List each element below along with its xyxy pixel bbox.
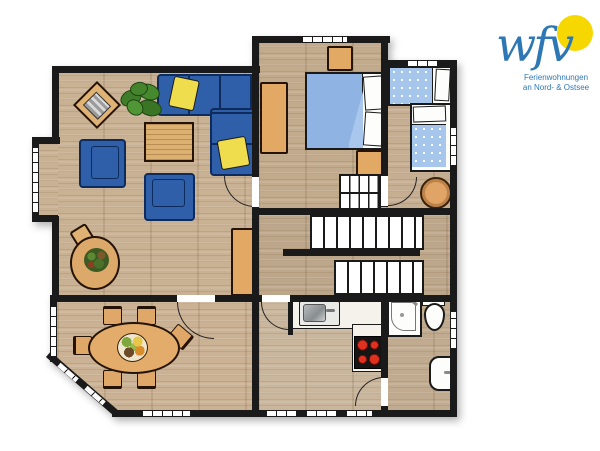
- round-stool: [420, 177, 452, 209]
- armchair-2: [144, 173, 195, 221]
- stove: [354, 336, 383, 369]
- sink-faucet: [326, 309, 335, 312]
- staircase-lower-flight: [334, 260, 424, 295]
- door-opening: [381, 377, 388, 407]
- armchair-1: [79, 139, 126, 188]
- wall: [252, 66, 259, 176]
- door-opening: [252, 176, 259, 208]
- wfv-logo: wfv Ferienwohnungen an Nord- & Ostsee: [488, 8, 598, 103]
- wall: [289, 295, 457, 302]
- kids-bed-horizontal: [388, 66, 454, 106]
- wall: [450, 60, 457, 417]
- coffee-table: [144, 122, 194, 162]
- door-opening: [261, 295, 291, 302]
- window: [307, 411, 337, 416]
- magazine-stack: [83, 92, 111, 120]
- staircase-upper-flight: [310, 215, 424, 250]
- jug-plant: [84, 248, 109, 272]
- window: [303, 37, 347, 42]
- logo-tagline-line1: Ferienwohnungen: [510, 73, 600, 83]
- duvet-fold: [349, 74, 363, 148]
- window: [451, 312, 456, 348]
- shower-tray: [391, 302, 416, 331]
- window: [143, 411, 190, 416]
- double-bed: [305, 72, 387, 150]
- window: [51, 306, 56, 356]
- nightstand-top: [327, 46, 353, 71]
- kitchen-wall-stub: [288, 302, 293, 335]
- crib: [339, 174, 381, 210]
- kids-pillow: [413, 105, 447, 122]
- shower-drain: [400, 313, 404, 317]
- wall: [252, 208, 457, 215]
- dining-chair: [103, 370, 122, 389]
- wall: [252, 302, 259, 417]
- window: [347, 411, 372, 416]
- potted-plant: [120, 82, 160, 118]
- logo-tagline-line2: an Nord- & Ostsee: [510, 83, 600, 93]
- kids-pillow: [434, 69, 451, 102]
- wall: [52, 66, 59, 144]
- toilet-bowl: [424, 303, 445, 331]
- kids-bed-vertical: [410, 103, 452, 172]
- wall: [52, 216, 59, 302]
- wall: [381, 302, 388, 377]
- window: [33, 148, 38, 212]
- wall: [52, 66, 260, 73]
- sink-basin: [303, 304, 326, 322]
- door-opening: [381, 175, 388, 207]
- wall: [50, 295, 176, 302]
- wall: [381, 43, 388, 175]
- shower: [387, 298, 422, 337]
- living-room-floor-bay: [36, 143, 58, 217]
- armchair-seat: [152, 179, 185, 207]
- staircase-divider: [283, 249, 420, 256]
- kids-duvet: [390, 68, 433, 104]
- bedroom-wardrobe: [260, 82, 288, 154]
- kids-duvet: [412, 124, 446, 167]
- floorplan-canvas: wfv Ferienwohnungen an Nord- & Ostsee: [0, 0, 600, 451]
- dining-chair: [103, 306, 122, 325]
- kitchen-sink: [299, 301, 340, 326]
- logo-monogram: wfv: [496, 22, 571, 69]
- wall: [252, 206, 259, 302]
- fruit-bowl: [117, 333, 148, 362]
- door-opening: [176, 295, 216, 302]
- jug-plant-table: [64, 222, 120, 292]
- window: [451, 128, 456, 165]
- window: [408, 61, 438, 66]
- sofa-cushion-2: [217, 136, 251, 171]
- window: [267, 411, 297, 416]
- armchair-seat: [91, 146, 119, 179]
